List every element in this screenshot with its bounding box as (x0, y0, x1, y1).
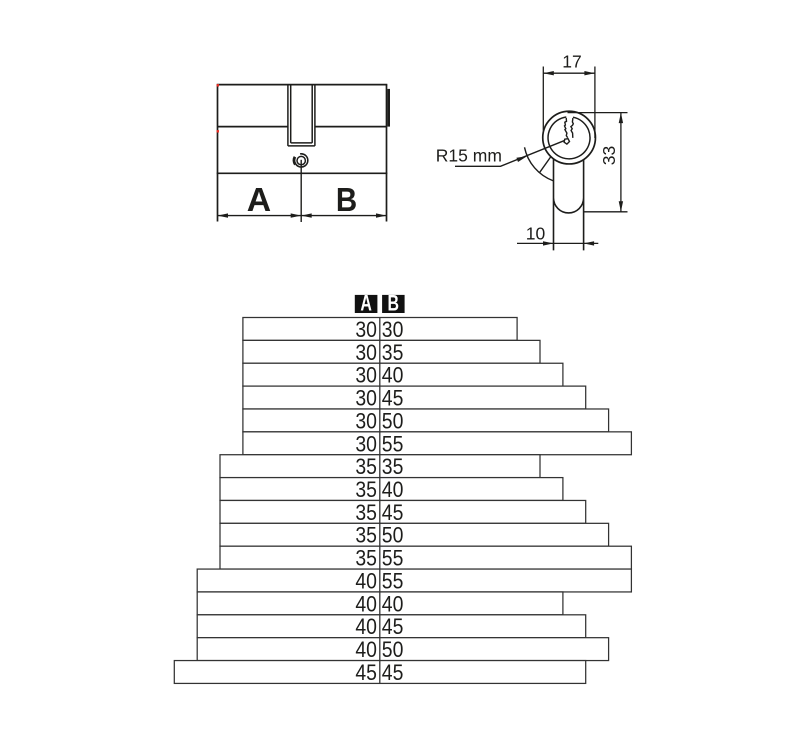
svg-text:40: 40 (355, 637, 377, 662)
svg-text:B: B (336, 181, 357, 218)
svg-text:33: 33 (599, 146, 619, 165)
svg-text:40: 40 (355, 568, 377, 593)
svg-text:30: 30 (355, 431, 377, 456)
svg-text:45: 45 (382, 660, 404, 685)
svg-text:35: 35 (355, 546, 377, 571)
svg-text:35: 35 (355, 500, 377, 525)
svg-text:30: 30 (355, 386, 377, 411)
svg-text:30: 30 (355, 363, 377, 388)
svg-text:55: 55 (382, 546, 404, 571)
svg-text:A: A (247, 181, 271, 218)
svg-text:30: 30 (355, 340, 377, 365)
svg-text:35: 35 (355, 523, 377, 548)
svg-text:55: 55 (382, 568, 404, 593)
svg-text:30: 30 (355, 317, 377, 342)
svg-text:50: 50 (382, 523, 404, 548)
svg-text:R15 mm: R15 mm (436, 146, 502, 166)
svg-text:B: B (388, 290, 400, 315)
svg-text:30: 30 (382, 317, 404, 342)
svg-text:40: 40 (382, 477, 404, 502)
svg-text:45: 45 (382, 500, 404, 525)
svg-text:40: 40 (382, 363, 404, 388)
svg-text:10: 10 (526, 223, 546, 243)
svg-text:40: 40 (355, 591, 377, 616)
svg-text:45: 45 (382, 386, 404, 411)
svg-text:50: 50 (382, 408, 404, 433)
svg-text:A: A (360, 290, 372, 315)
svg-text:35: 35 (355, 454, 377, 479)
svg-text:40: 40 (382, 591, 404, 616)
svg-text:35: 35 (382, 340, 404, 365)
svg-text:45: 45 (382, 614, 404, 639)
svg-text:50: 50 (382, 637, 404, 662)
svg-text:17: 17 (562, 51, 581, 71)
svg-text:35: 35 (382, 454, 404, 479)
svg-text:30: 30 (355, 408, 377, 433)
svg-text:45: 45 (355, 660, 377, 685)
svg-text:35: 35 (355, 477, 377, 502)
svg-text:40: 40 (355, 614, 377, 639)
svg-text:55: 55 (382, 431, 404, 456)
